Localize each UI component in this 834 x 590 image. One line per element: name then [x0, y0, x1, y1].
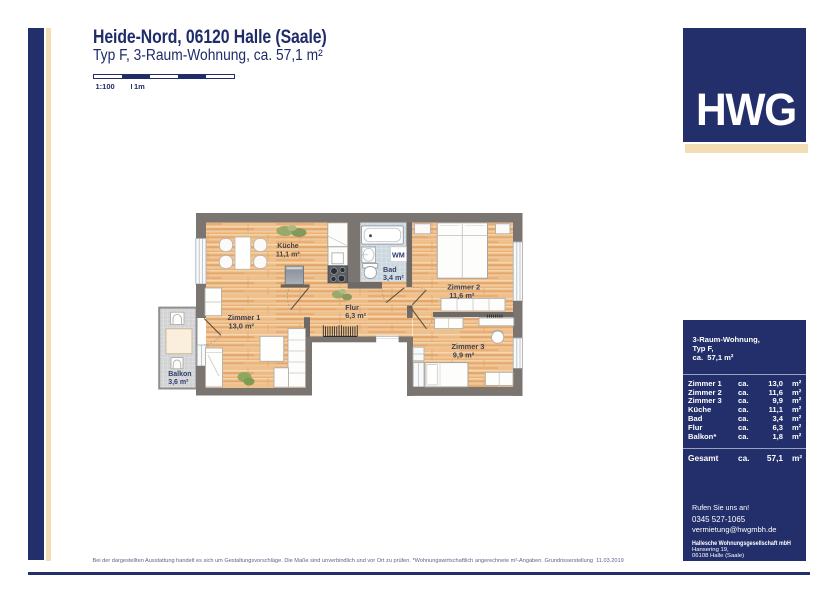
svg-text:Balkon: Balkon: [168, 371, 191, 378]
svg-text:Küche: Küche: [277, 243, 299, 250]
svg-text:11,6 m²: 11,6 m²: [449, 291, 475, 300]
svg-text:13,0 m²: 13,0 m²: [229, 322, 255, 331]
svg-text:6,3 m²: 6,3 m²: [345, 311, 366, 320]
svg-text:WM: WM: [392, 250, 405, 259]
svg-text:3,4 m²: 3,4 m²: [383, 273, 404, 282]
svg-text:9,9 m²: 9,9 m²: [453, 351, 475, 360]
svg-text:3,6 m²: 3,6 m²: [168, 379, 189, 386]
svg-text:11,1 m²: 11,1 m²: [276, 252, 300, 259]
